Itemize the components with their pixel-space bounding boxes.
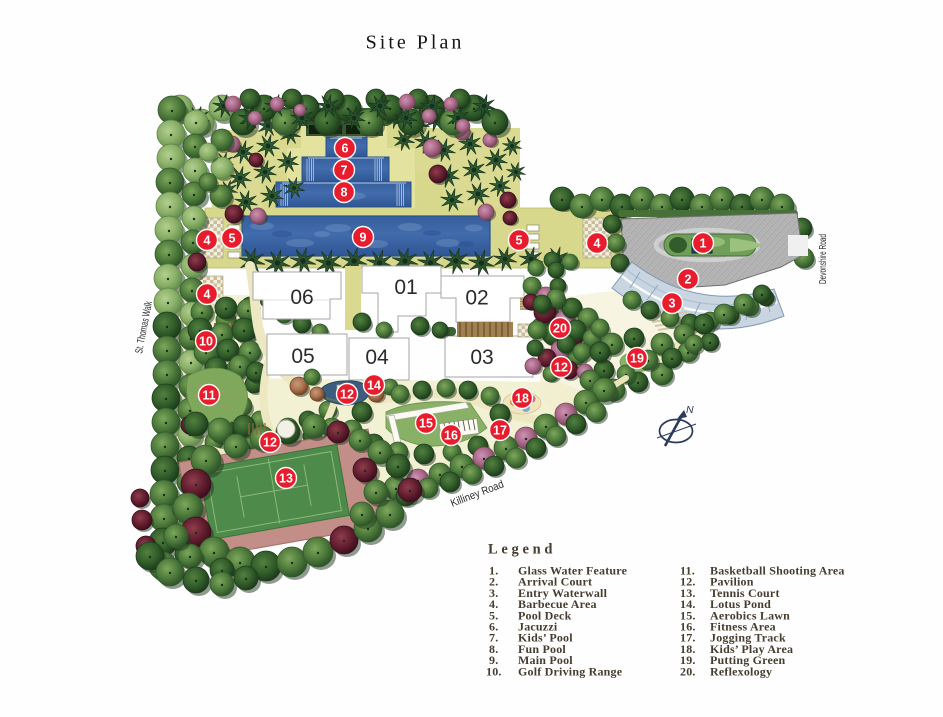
svg-text:19: 19 (630, 352, 644, 366)
svg-text:13: 13 (279, 472, 293, 486)
svg-text:7: 7 (341, 164, 348, 178)
svg-text:Golf Driving Range: Golf Driving Range (518, 664, 623, 678)
svg-text:04: 04 (365, 346, 389, 369)
svg-text:12: 12 (340, 388, 354, 402)
svg-text:15: 15 (419, 417, 433, 431)
svg-text:6: 6 (342, 142, 349, 156)
svg-text:12: 12 (263, 436, 277, 450)
svg-text:8: 8 (341, 186, 348, 200)
svg-text:20: 20 (553, 322, 567, 336)
svg-text:4: 4 (594, 237, 601, 251)
svg-text:5: 5 (516, 234, 523, 248)
svg-text:03: 03 (470, 346, 493, 369)
svg-text:1: 1 (700, 237, 707, 251)
svg-text:4: 4 (204, 288, 211, 302)
svg-text:02: 02 (465, 287, 488, 310)
svg-text:Devonshire Road: Devonshire Road (817, 234, 829, 284)
svg-text:17: 17 (493, 424, 507, 438)
svg-text:4: 4 (204, 234, 211, 248)
svg-text:11: 11 (202, 389, 215, 403)
svg-text:Site Plan: Site Plan (366, 32, 465, 54)
svg-text:12: 12 (554, 361, 568, 375)
svg-text:05: 05 (291, 345, 314, 368)
svg-text:20.: 20. (680, 664, 696, 678)
svg-text:14: 14 (367, 379, 381, 393)
svg-text:16: 16 (444, 429, 458, 443)
svg-text:10: 10 (199, 335, 213, 349)
svg-text:01: 01 (394, 276, 417, 299)
svg-text:N: N (686, 404, 694, 416)
svg-text:Legend: Legend (488, 542, 556, 558)
svg-text:2: 2 (685, 273, 692, 287)
svg-text:06: 06 (290, 286, 313, 309)
svg-text:Reflexology: Reflexology (710, 664, 772, 678)
svg-text:5: 5 (229, 232, 236, 246)
svg-text:3: 3 (669, 297, 676, 311)
svg-text:18: 18 (515, 392, 529, 406)
svg-text:9: 9 (360, 231, 367, 245)
svg-text:10.: 10. (486, 664, 502, 678)
